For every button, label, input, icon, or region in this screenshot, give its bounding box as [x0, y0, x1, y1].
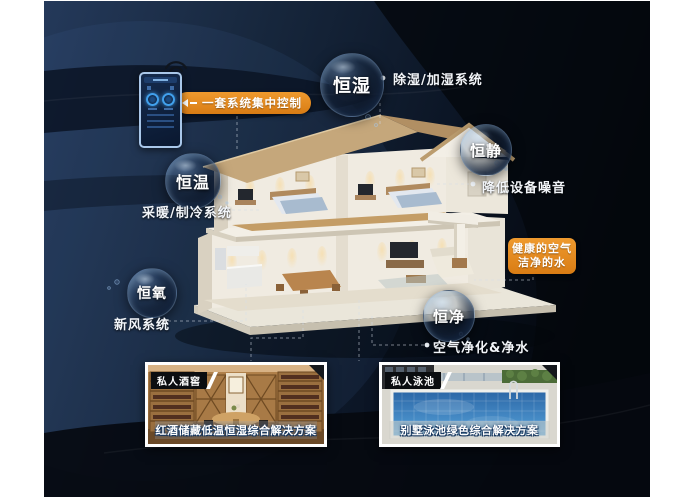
label-noise-reduction: 降低设备噪音: [482, 177, 566, 196]
phone-status-icons: [144, 86, 177, 90]
bubble-constant-oxygen: 恒氧: [127, 268, 177, 318]
callout-central-control: 一套系统集中控制: [176, 92, 311, 114]
phone-menu-rows: [144, 114, 177, 128]
callout-healthy-line1: 健康的空气: [511, 242, 573, 256]
bubble-label: 恒净: [433, 306, 465, 327]
photo-caption-pool: 别墅泳池绿色综合解决方案: [389, 421, 550, 439]
callout-central-control-label: 一套系统集中控制: [202, 95, 302, 111]
bubble-label: 恒静: [470, 140, 502, 161]
corner-fold-icon: [542, 365, 557, 380]
arrow-left-icon: [182, 99, 188, 107]
smart-control-panel: [139, 72, 182, 148]
dial-icon: [146, 93, 159, 106]
photo-card-wine-cellar: 私人酒窖 红酒储藏低温恒湿综合解决方案: [145, 362, 327, 447]
bubble-constant-humidity: 恒湿: [320, 53, 384, 117]
photo-card-pool: 私人泳池 别墅泳池绿色综合解决方案: [379, 362, 560, 447]
label-dehumidify-system: 除湿/加湿系统: [393, 69, 483, 88]
bubble-label: 恒湿: [333, 72, 371, 98]
photo-caption-wine: 红酒储藏低温恒湿综合解决方案: [155, 421, 317, 439]
bubble-label: 恒温: [176, 169, 210, 193]
photo-tag-wine: 私人酒窖: [151, 372, 207, 389]
callout-healthy-line2: 洁净的水: [511, 256, 573, 270]
phone-dial-labels: [144, 108, 177, 110]
bubble-constant-temperature: 恒温: [165, 153, 221, 209]
label-air-water-purify: 空气净化&净水: [433, 337, 529, 356]
dial-icon: [162, 93, 175, 106]
leader-line: [190, 102, 197, 104]
phone-titlebar: [144, 77, 177, 83]
bubble-constant-quiet: 恒静: [460, 124, 512, 176]
photo-tag-pool: 私人泳池: [385, 372, 441, 389]
bubble-label: 恒氧: [137, 283, 167, 303]
label-heating-cooling: 采暖/制冷系统: [142, 202, 232, 221]
phone-dials: [144, 93, 177, 106]
infographic-canvas: 一套系统集中控制 健康的空气 洁净的水 恒湿 恒静 恒温 恒氧 恒净 除湿/加湿…: [0, 0, 700, 497]
corner-fold-icon: [309, 365, 324, 380]
bubble-constant-clean: 恒净: [423, 290, 475, 342]
label-fresh-air-system: 新风系统: [114, 314, 170, 333]
callout-healthy-air-water: 健康的空气 洁净的水: [508, 238, 576, 274]
